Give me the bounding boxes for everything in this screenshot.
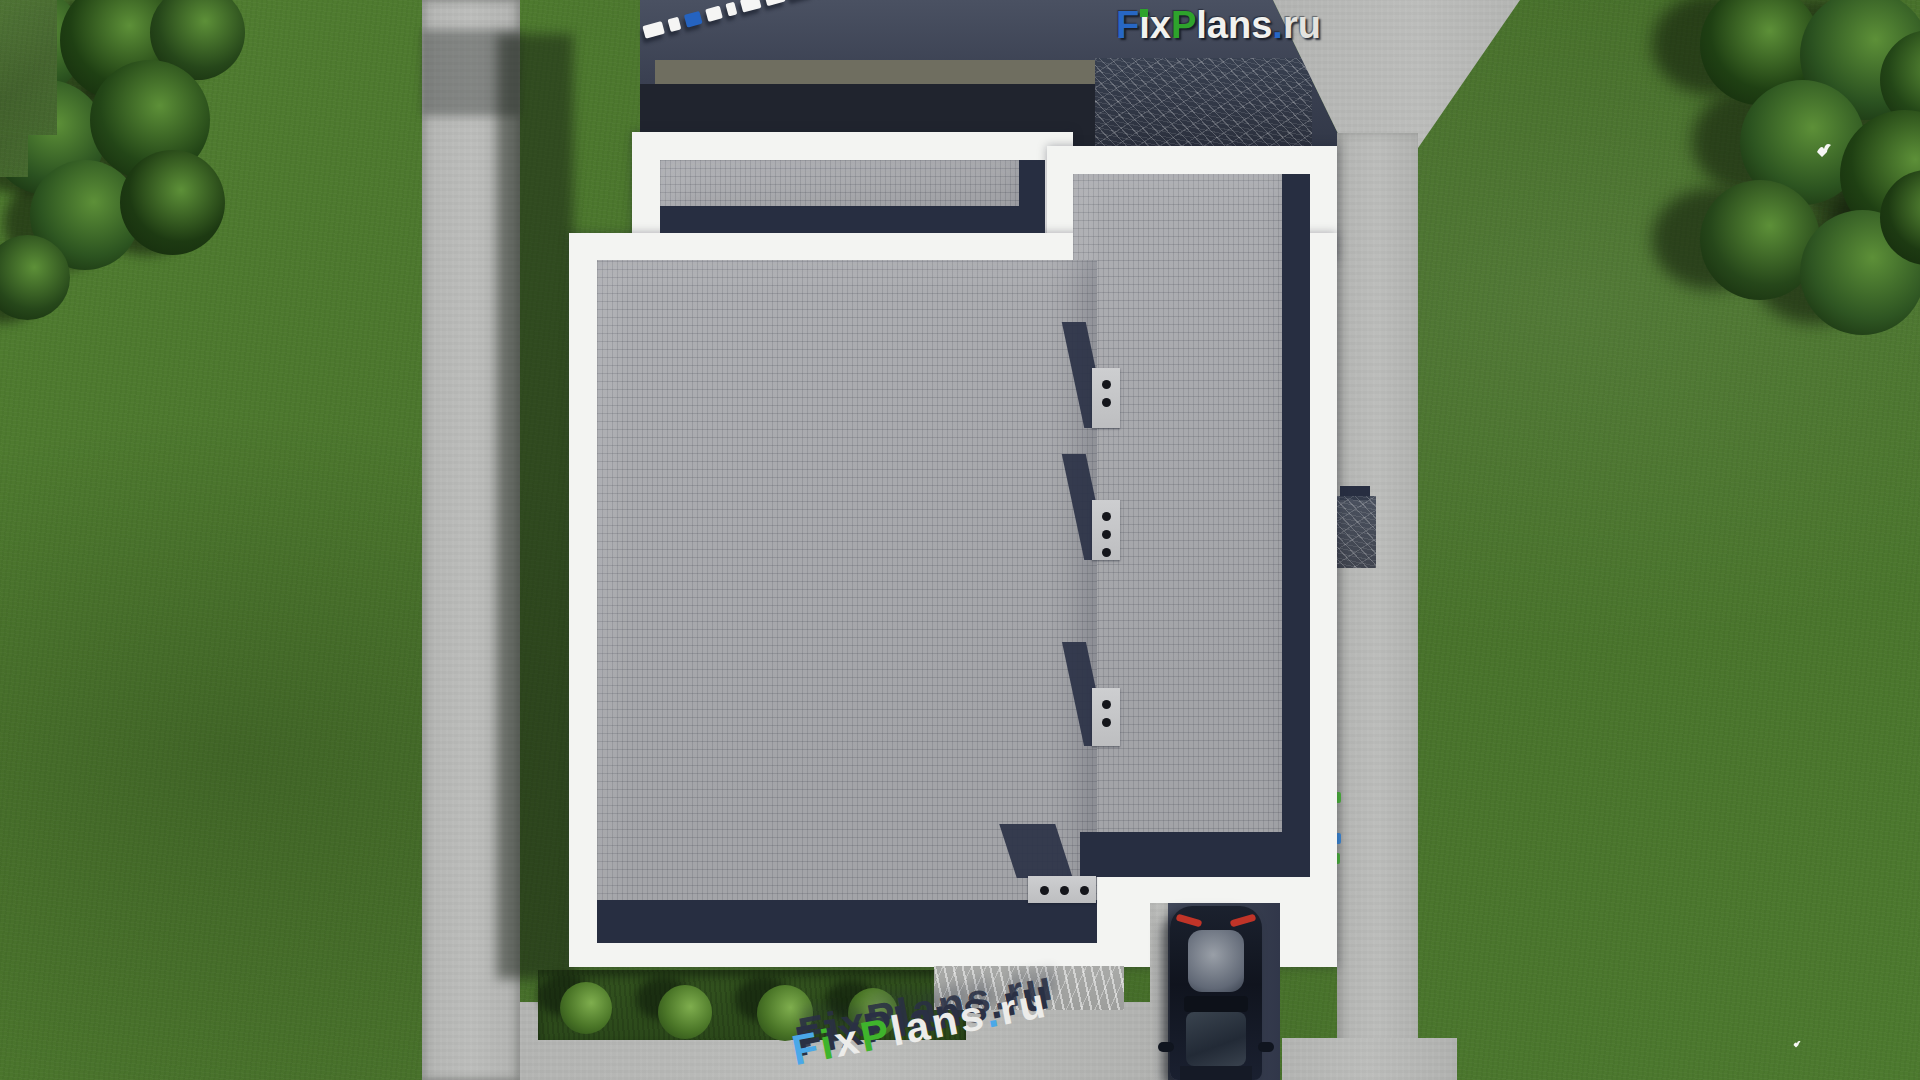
bird	[1814, 142, 1834, 158]
bird	[1792, 1034, 1802, 1042]
scene: FixPlans.ru FixPlans.ru	[0, 0, 1920, 1080]
bird-layer	[0, 0, 1920, 1080]
